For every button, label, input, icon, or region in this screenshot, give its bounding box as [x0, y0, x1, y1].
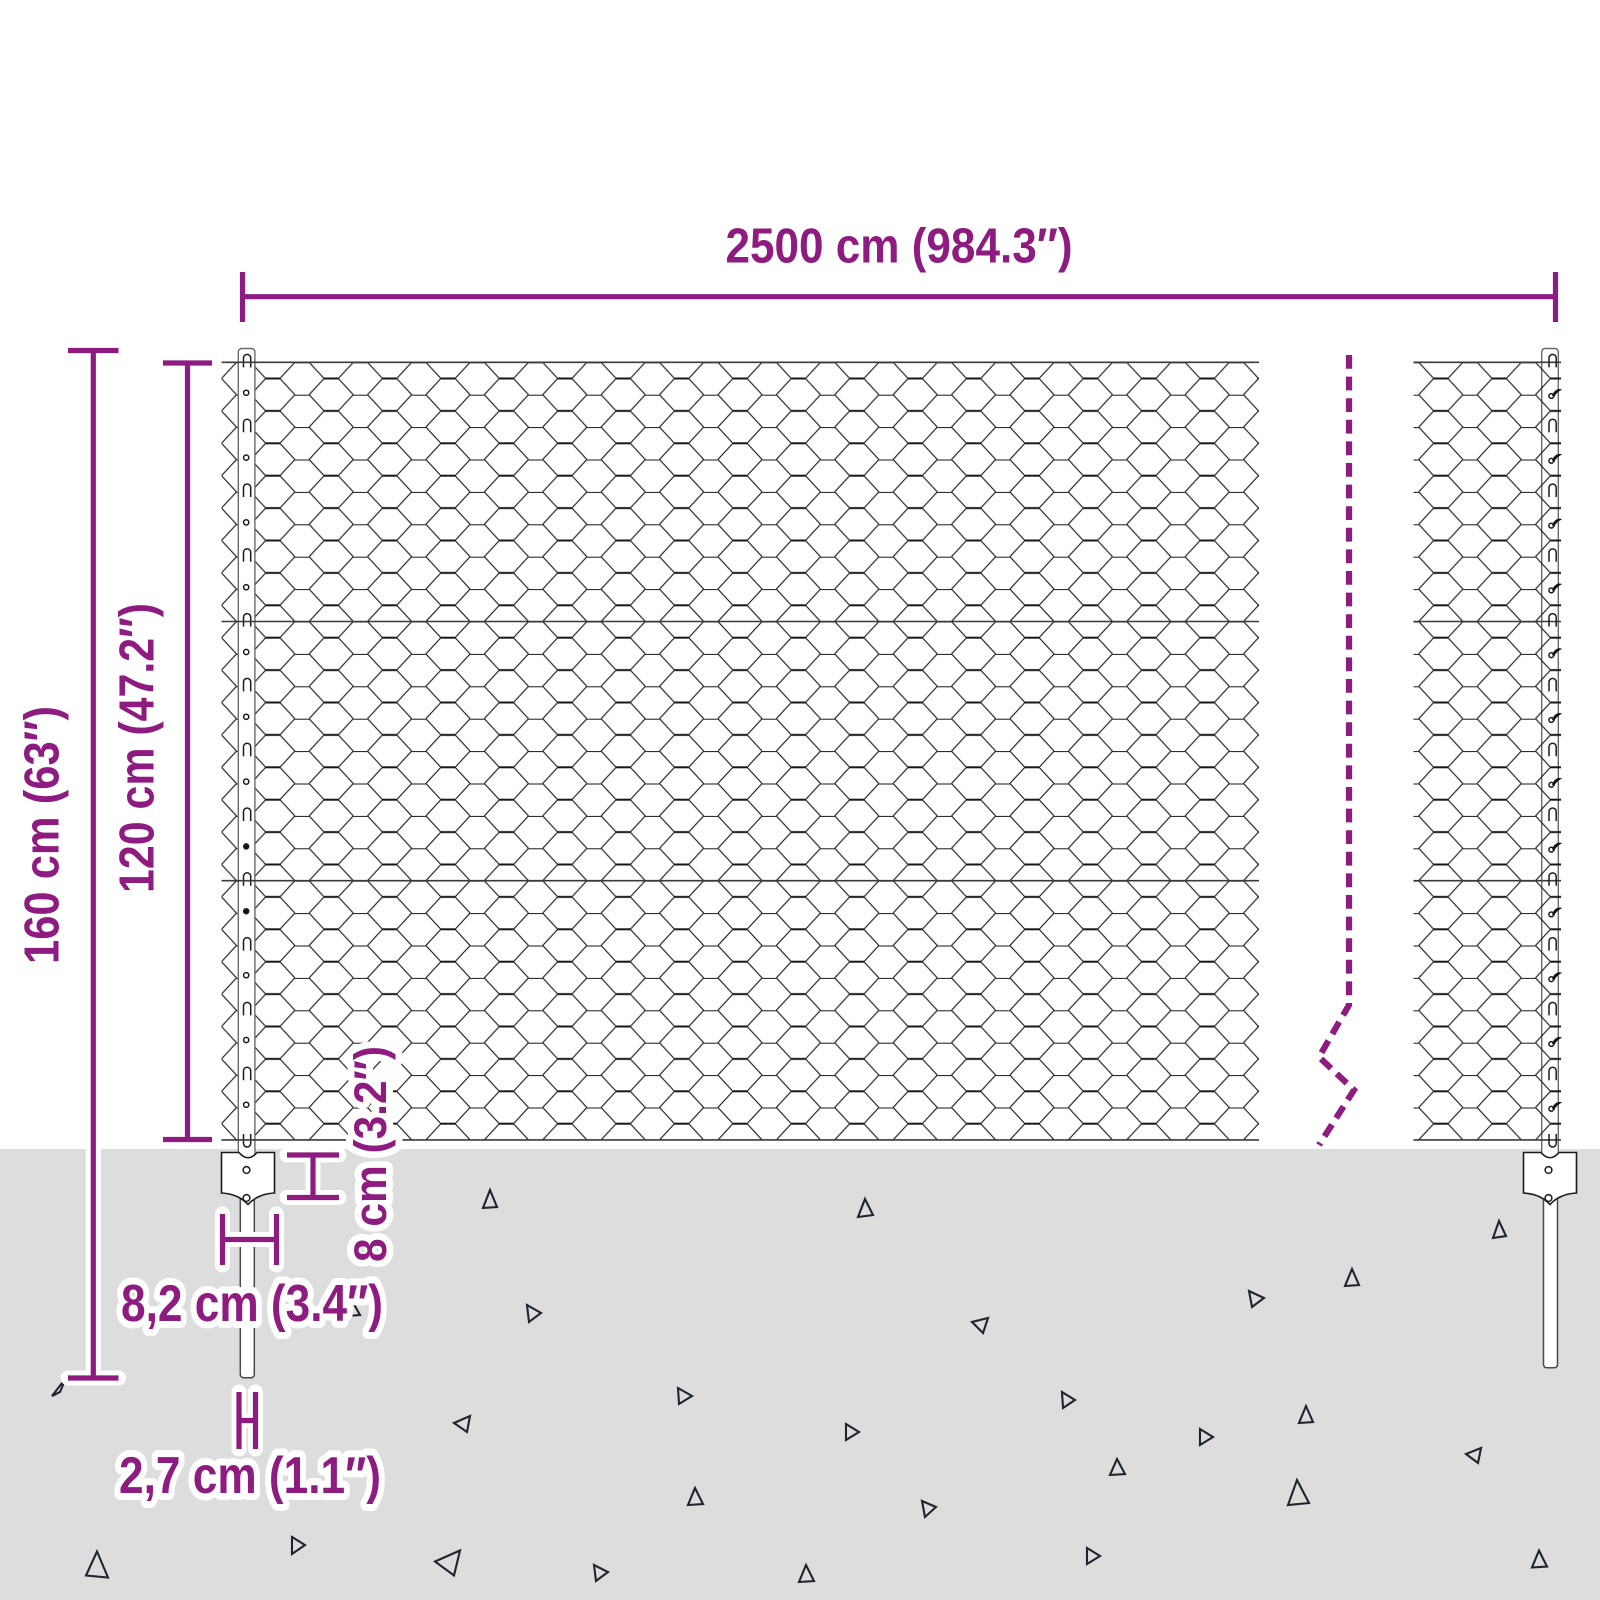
- svg-text:120 cm (47.2″): 120 cm (47.2″): [110, 603, 165, 893]
- svg-text:2,7 cm (1.1″): 2,7 cm (1.1″): [119, 1447, 381, 1505]
- svg-text:160 cm (63″): 160 cm (63″): [15, 706, 70, 964]
- svg-text:8,2 cm (3.4″): 8,2 cm (3.4″): [121, 1275, 383, 1333]
- svg-text:8 cm (3.2″): 8 cm (3.2″): [345, 1046, 396, 1262]
- svg-text:2500 cm (984.3″): 2500 cm (984.3″): [726, 219, 1073, 274]
